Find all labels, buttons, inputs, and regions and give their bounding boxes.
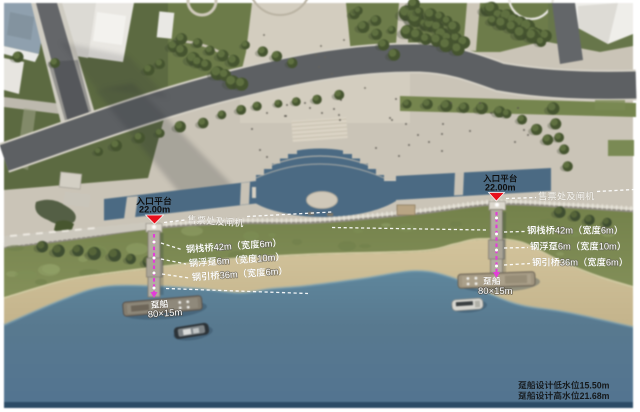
- svg-text:6m: 6m: [259, 238, 273, 249]
- svg-text:6m: 6m: [601, 226, 614, 236]
- svg-text:80×15m: 80×15m: [478, 286, 513, 297]
- svg-text:42m: 42m: [213, 241, 232, 252]
- svg-text:6m: 6m: [216, 256, 230, 267]
- svg-text:10m: 10m: [599, 242, 617, 252]
- svg-text:15.50m: 15.50m: [580, 380, 610, 390]
- svg-text:22.00m: 22.00m: [139, 205, 170, 215]
- svg-text:36m: 36m: [219, 269, 238, 280]
- svg-text:6m: 6m: [558, 242, 571, 252]
- svg-text:21.68m: 21.68m: [580, 391, 610, 401]
- svg-text:6m: 6m: [265, 266, 279, 277]
- svg-text:42m: 42m: [555, 226, 573, 236]
- svg-text:6m: 6m: [606, 258, 619, 268]
- svg-text:36m: 36m: [560, 258, 578, 268]
- svg-text:10m: 10m: [257, 252, 276, 263]
- svg-text:22.00m: 22.00m: [485, 183, 516, 193]
